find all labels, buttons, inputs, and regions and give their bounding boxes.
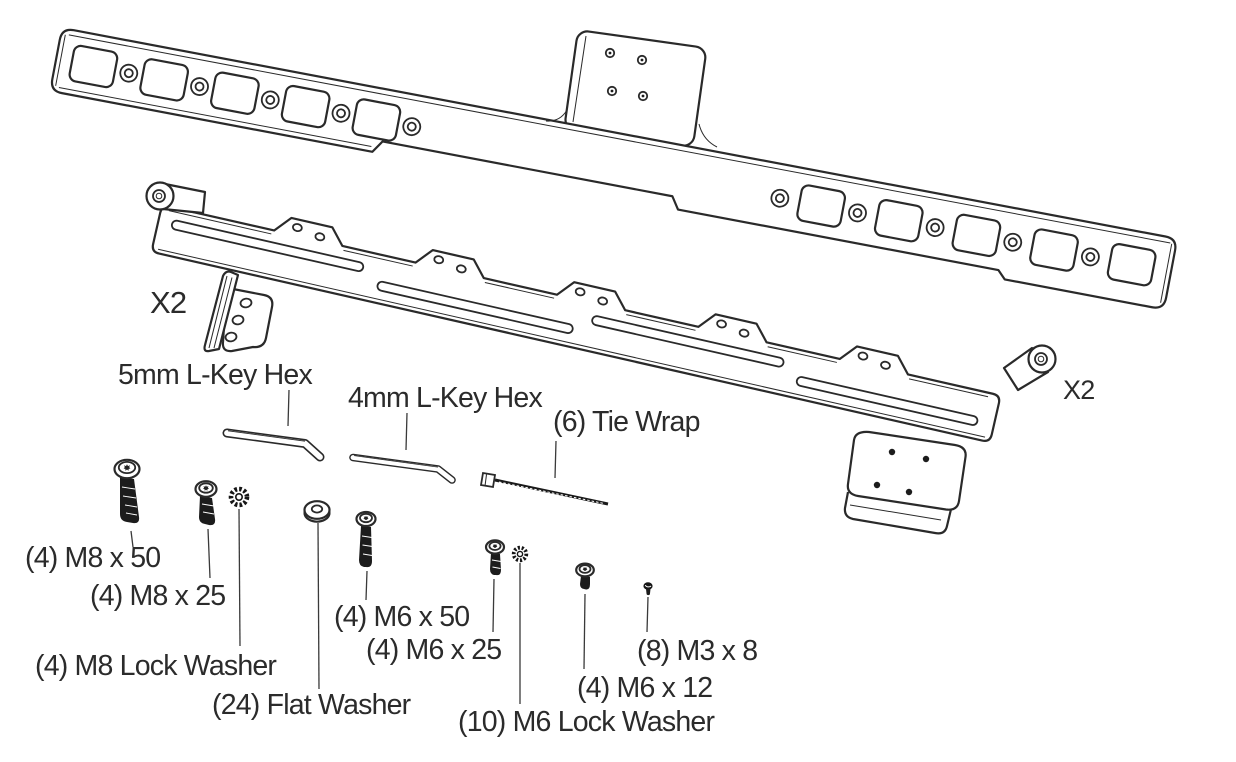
hardware-kit-diagram: X2 X2 5mm L-Key Hex 4mm L-Key Hex (6) Ti… [0, 0, 1236, 762]
label-hex-key-4mm: 4mm L-Key Hex [348, 382, 542, 414]
bolt-m6x25 [486, 540, 504, 575]
label-m8-lock-washer: (4) M8 Lock Washer [35, 650, 277, 682]
label-bolt-m6x12: (4) M6 x 12 [577, 672, 712, 704]
bolt-m8x25 [196, 481, 217, 525]
bolt-m6x50 [357, 512, 376, 567]
label-bolt-m6x50: (4) M6 x 50 [334, 601, 469, 633]
qty-label-corner-bracket: X2 [150, 285, 186, 320]
label-tie-wrap: (6) Tie Wrap [553, 406, 700, 438]
label-hex-key-5mm: 5mm L-Key Hex [118, 359, 312, 391]
qty-label-rail-bracket: X2 [1063, 375, 1094, 405]
tie-wrap [481, 473, 608, 504]
plate-flare-right [699, 124, 717, 147]
rail-left-eye [147, 183, 206, 214]
m6-lock-washer [514, 548, 527, 561]
label-bolt-m6x25: (4) M6 x 25 [366, 634, 501, 666]
label-bolt-m8x25: (4) M8 x 25 [90, 580, 225, 612]
hex-key-5mm [227, 431, 320, 457]
screw-m3x8 [643, 582, 652, 595]
corner-bracket [205, 272, 273, 352]
bolt-m6x12 [576, 564, 594, 590]
rail-right-eye [1004, 346, 1056, 391]
label-bolt-m8x50: (4) M8 x 50 [25, 542, 160, 574]
label-flat-washer: (24) Flat Washer [212, 689, 412, 721]
m8-lock-washer [231, 489, 247, 505]
flat-washer [305, 501, 330, 521]
bolt-m8x50 [115, 460, 140, 523]
exploded-parts-drawing: X2 X2 5mm L-Key Hex 4mm L-Key Hex (6) Ti… [0, 0, 1236, 762]
hex-key-4mm [353, 456, 452, 480]
cover-plate [845, 432, 966, 533]
label-m6-lock-washer: (10) M6 Lock Washer [458, 706, 715, 738]
label-screw-m3x8: (8) M3 x 8 [637, 635, 757, 667]
